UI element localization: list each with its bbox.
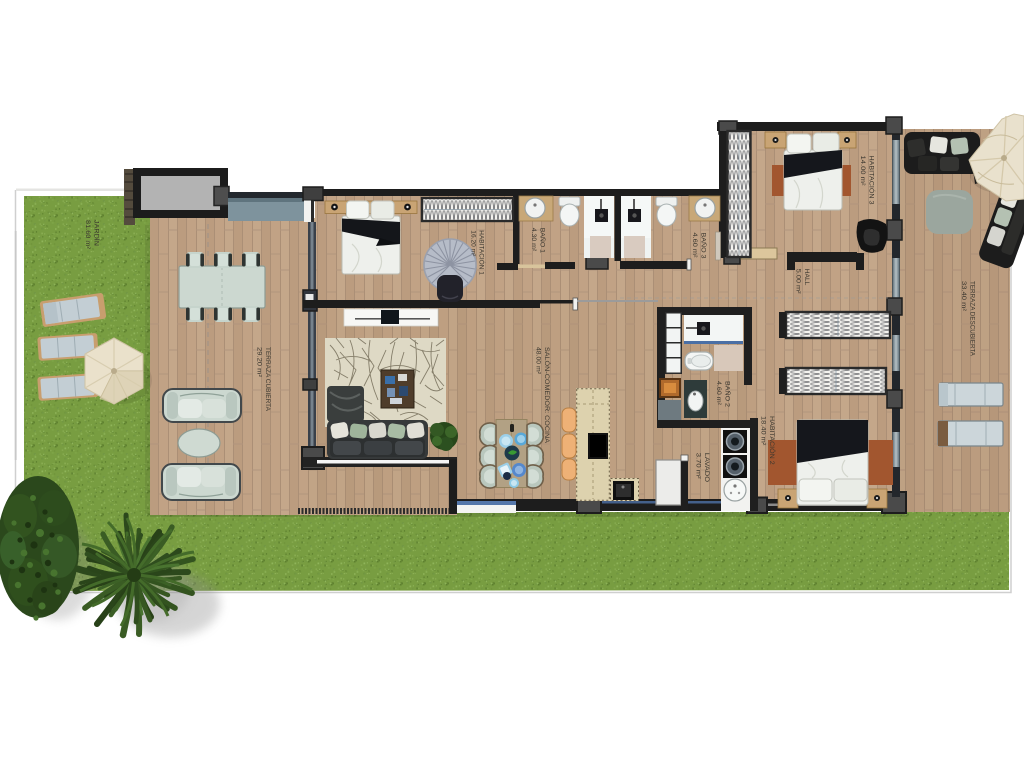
svg-text:BAÑO 2: BAÑO 2 bbox=[724, 381, 733, 407]
svg-text:TERRAZA CUBIERTA: TERRAZA CUBIERTA bbox=[264, 347, 271, 412]
svg-text:BAÑO 3: BAÑO 3 bbox=[700, 233, 709, 259]
svg-text:29.20 m²: 29.20 m² bbox=[256, 347, 263, 378]
svg-text:HABITACIÓN 3: HABITACIÓN 3 bbox=[867, 156, 876, 205]
svg-text:33.40 m²: 33.40 m² bbox=[960, 281, 967, 312]
svg-text:3.70 m²: 3.70 m² bbox=[695, 453, 702, 480]
svg-text:BAÑO 1: BAÑO 1 bbox=[539, 228, 548, 254]
svg-text:4.60 m²: 4.60 m² bbox=[691, 233, 698, 259]
svg-text:HALL: HALL bbox=[803, 269, 810, 286]
svg-text:JARDÍN: JARDÍN bbox=[93, 220, 102, 246]
svg-text:4.30 m²: 4.30 m² bbox=[530, 228, 537, 252]
svg-text:HABITACIÓN 1: HABITACIÓN 1 bbox=[478, 230, 487, 275]
svg-text:HABITACIÓN 2: HABITACIÓN 2 bbox=[768, 416, 777, 465]
svg-text:48.00 m²: 48.00 m² bbox=[535, 347, 542, 375]
svg-text:5.00 m²: 5.00 m² bbox=[795, 269, 802, 295]
svg-text:14.00 m²: 14.00 m² bbox=[859, 156, 866, 187]
svg-text:TERRAZA DESCUBIERTA: TERRAZA DESCUBIERTA bbox=[968, 281, 975, 357]
svg-text:81.60 m²: 81.60 m² bbox=[84, 220, 91, 250]
svg-text:LAVADO: LAVADO bbox=[703, 453, 710, 482]
svg-text:SALÓN-COMEDOR: COCINA: SALÓN-COMEDOR: COCINA bbox=[543, 347, 552, 444]
svg-text:18.40 m²: 18.40 m² bbox=[760, 416, 767, 446]
svg-text:16.20 m²: 16.20 m² bbox=[469, 230, 476, 257]
svg-text:4.60 m²: 4.60 m² bbox=[715, 381, 722, 406]
